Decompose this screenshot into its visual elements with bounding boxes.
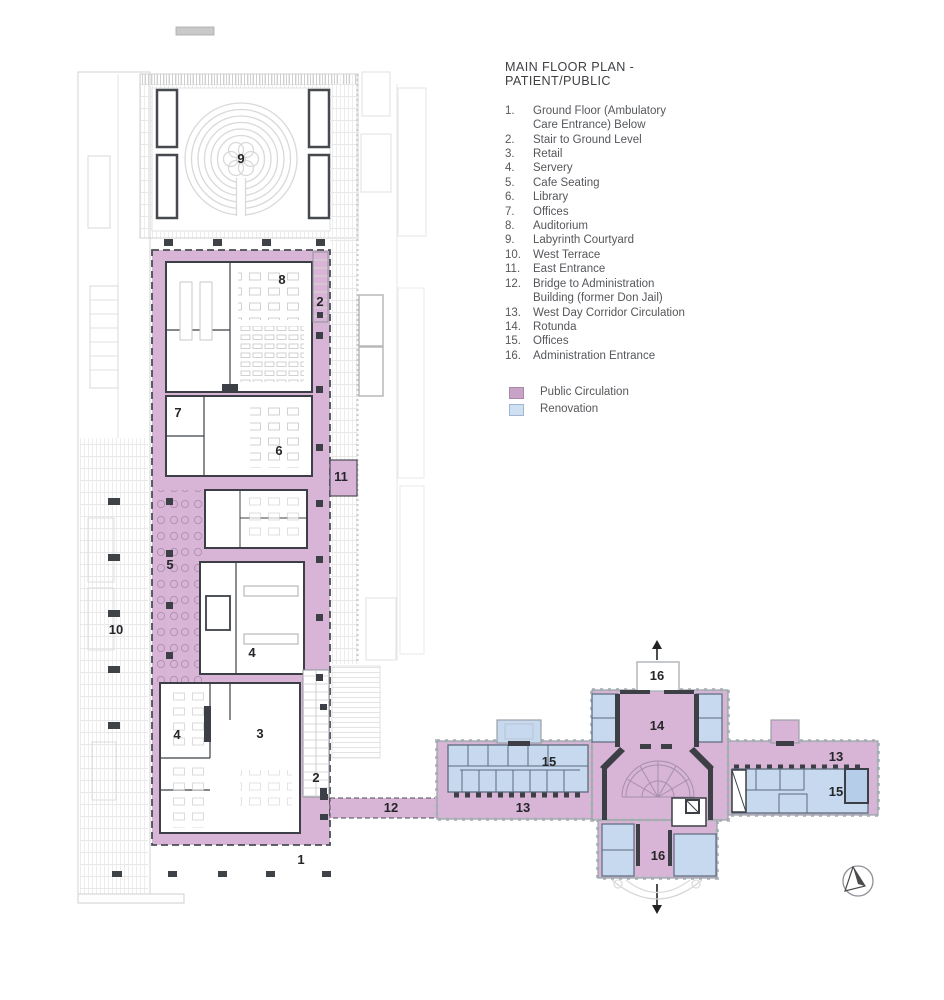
legend-item-label: Offices <box>533 205 693 219</box>
legend-item-number: 8. <box>505 219 533 233</box>
legend-item-label: Cafe Seating <box>533 176 693 190</box>
page-title: MAIN FLOOR PLAN - PATIENT/PUBLIC <box>505 60 725 89</box>
legend-item-number: 11. <box>505 262 533 276</box>
legend-item-number: 6. <box>505 190 533 204</box>
site-east-strip <box>330 72 426 758</box>
legend-item-number: 4. <box>505 161 533 175</box>
legend: MAIN FLOOR PLAN - PATIENT/PUBLIC 1.Groun… <box>505 60 725 418</box>
legend-item-label: Offices <box>533 334 693 348</box>
legend-item-label: Retail <box>533 147 693 161</box>
stair-top <box>313 252 328 322</box>
renovation-swatch <box>509 404 524 416</box>
plan-marker-library: 6 <box>275 443 282 458</box>
legend-item: 7.Offices <box>505 205 725 219</box>
plan-marker-admin-entrance-north: 16 <box>650 668 664 683</box>
plan-marker-offices-west: 7 <box>174 405 181 420</box>
plan-marker-rotunda: 14 <box>650 718 665 733</box>
plan-marker-west-terrace: 10 <box>109 622 123 637</box>
legend-swatches: Public Circulation Renovation <box>505 384 725 418</box>
plan-marker-auditorium: 8 <box>278 272 285 287</box>
legend-item: 10.West Terrace <box>505 248 725 262</box>
legend-item-label: Library <box>533 190 693 204</box>
plan-marker-retail: 3 <box>256 726 263 741</box>
legend-item-label: West Day Corridor Circulation <box>533 306 693 320</box>
plan-marker-west-day-corridor: 13 <box>516 800 530 815</box>
legend-item-label: Labyrinth Courtyard <box>533 233 693 247</box>
legend-item-label: Administration Entrance <box>533 349 693 363</box>
plan-marker-stair-bottom: 2 <box>312 770 319 785</box>
plan-marker-servery-2: 4 <box>173 727 181 742</box>
legend-item-number: 2. <box>505 133 533 147</box>
legend-item-number: 14. <box>505 320 533 334</box>
legend-item: 13.West Day Corridor Circulation <box>505 306 725 320</box>
admin-east-wing <box>728 720 878 815</box>
legend-item: 14.Rotunda <box>505 320 725 334</box>
legend-item-label: Servery <box>533 161 693 175</box>
legend-item-label: Stair to Ground Level <box>533 133 693 147</box>
retail-block <box>160 683 300 833</box>
legend-item-number: 13. <box>505 306 533 320</box>
mid-block <box>205 490 307 548</box>
legend-item-number: 15. <box>505 334 533 348</box>
legend-swatch-row: Public Circulation <box>505 384 725 401</box>
plan-marker-west-day-corridor-2: 13 <box>829 749 843 764</box>
plan-marker-east-entrance: 11 <box>334 469 348 484</box>
legend-item: 9.Labyrinth Courtyard <box>505 233 725 247</box>
auditorium-block <box>166 262 312 392</box>
plan-marker-ground-floor: 1 <box>297 852 304 867</box>
courtyard-columns <box>164 239 325 246</box>
legend-item: 3.Retail <box>505 147 725 161</box>
legend-swatch-label: Public Circulation <box>540 385 629 399</box>
legend-swatch-row: Renovation <box>505 401 725 418</box>
legend-item: 12.Bridge to Administration Building (fo… <box>505 277 725 306</box>
legend-item-number: 3. <box>505 147 533 161</box>
floor-plan-drawing: 9 8 2 7 6 11 5 10 4 4 3 2 12 1 15 13 13 … <box>0 0 944 1000</box>
legend-item: 15.Offices <box>505 334 725 348</box>
legend-item: 5.Cafe Seating <box>505 176 725 190</box>
legend-item-number: 5. <box>505 176 533 190</box>
cafe-seating-tables <box>154 490 204 682</box>
plan-marker-servery: 4 <box>248 645 256 660</box>
public-circulation-swatch <box>509 387 524 399</box>
legend-item-number: 12. <box>505 277 533 306</box>
legend-item-label: Auditorium <box>533 219 693 233</box>
legend-item-label: Ground Floor (Ambulatory Care Entrance) … <box>533 104 693 133</box>
admin-west-wing <box>437 720 592 819</box>
plan-marker-stair-top: 2 <box>316 294 323 309</box>
plan-marker-cafe-seating: 5 <box>166 557 173 572</box>
offices-library-block <box>166 396 312 476</box>
entrance-arrow-up-icon <box>652 640 662 660</box>
legend-item: 1.Ground Floor (Ambulatory Care Entrance… <box>505 104 725 133</box>
legend-item: 6.Library <box>505 190 725 204</box>
legend-item-label: East Entrance <box>533 262 693 276</box>
plan-marker-admin-entrance-south: 16 <box>651 848 665 863</box>
legend-item: 2.Stair to Ground Level <box>505 133 725 147</box>
floor-plan-page: 9 8 2 7 6 11 5 10 4 4 3 2 12 1 15 13 13 … <box>0 0 944 1000</box>
main-building <box>152 250 357 845</box>
legend-item: 11.East Entrance <box>505 262 725 276</box>
legend-item: 16.Administration Entrance <box>505 349 725 363</box>
legend-item-number: 1. <box>505 104 533 133</box>
legend-item-label: Bridge to Administration Building (forme… <box>533 277 693 306</box>
legend-item-label: West Terrace <box>533 248 693 262</box>
plan-marker-offices-admin-west: 15 <box>542 754 556 769</box>
north-arrow-icon <box>843 866 873 896</box>
bridge <box>320 794 440 820</box>
legend-item: 4.Servery <box>505 161 725 175</box>
legend-swatch-label: Renovation <box>540 402 598 416</box>
legend-item-number: 7. <box>505 205 533 219</box>
plan-marker-bridge: 12 <box>384 800 398 815</box>
legend-item-number: 10. <box>505 248 533 262</box>
legend-item-number: 16. <box>505 349 533 363</box>
legend-item: 8.Auditorium <box>505 219 725 233</box>
plan-marker-offices-admin-east: 15 <box>829 784 843 799</box>
plan-marker-labyrinth: 9 <box>237 151 244 166</box>
legend-item-label: Rotunda <box>533 320 693 334</box>
legend-item-number: 9. <box>505 233 533 247</box>
